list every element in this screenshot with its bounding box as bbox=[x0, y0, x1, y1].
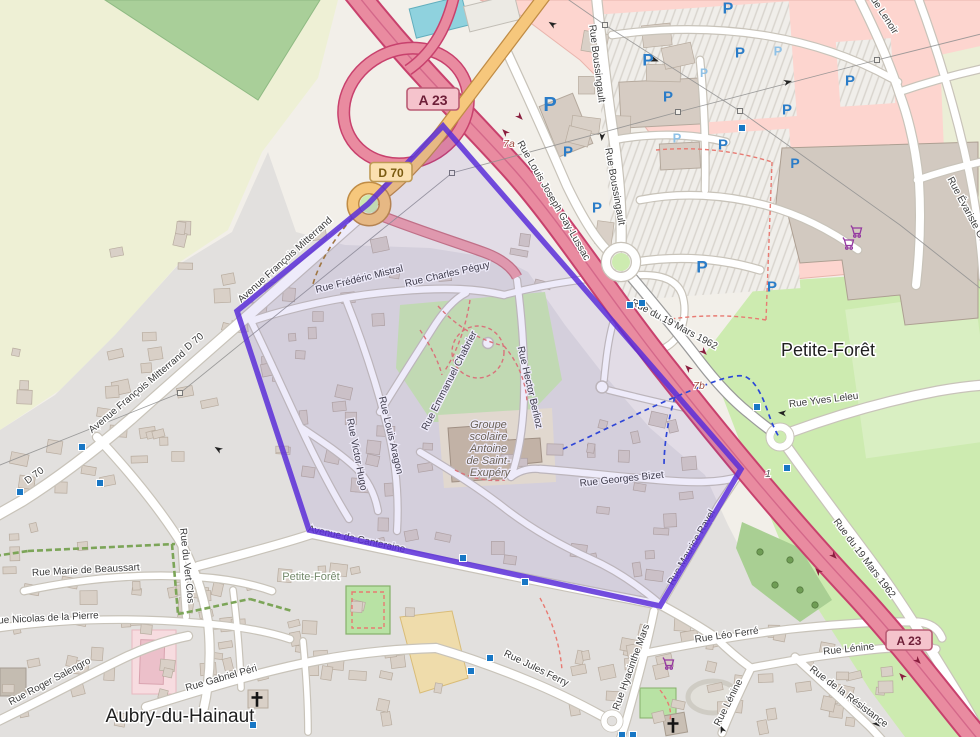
place-label-petite-foret: Petite-Forêt bbox=[781, 340, 875, 360]
power-pylon-icon bbox=[676, 110, 681, 115]
bus-stop-icon bbox=[754, 404, 761, 411]
parking-icon: P bbox=[782, 102, 792, 119]
power-pylon-icon bbox=[178, 391, 183, 396]
tree-icon bbox=[757, 549, 763, 555]
junction-ref-label: 1 bbox=[765, 468, 771, 480]
parking-icon: P bbox=[767, 279, 777, 296]
parking-icon: P bbox=[673, 131, 682, 146]
power-pylon-icon bbox=[603, 23, 608, 28]
bus-stop-icon bbox=[630, 732, 637, 737]
bus-stop-icon bbox=[468, 668, 475, 675]
bus-stop-icon bbox=[17, 489, 24, 496]
motorway-ref-badge: A 23 bbox=[407, 88, 459, 110]
parking-icon: P bbox=[696, 258, 707, 277]
junction-ref-label: 7a bbox=[503, 138, 515, 150]
bus-stop-icon bbox=[250, 722, 257, 729]
power-pylon-icon bbox=[738, 109, 743, 114]
bus-stop-icon bbox=[79, 444, 86, 451]
bus-stop-icon bbox=[639, 300, 646, 307]
parking-icon: P bbox=[642, 51, 653, 70]
tree-icon bbox=[787, 557, 793, 563]
svg-text:A 23: A 23 bbox=[418, 92, 447, 108]
bus-stop-icon bbox=[460, 555, 467, 562]
power-pylon-icon bbox=[875, 58, 880, 63]
bus-stop-icon bbox=[487, 655, 494, 662]
road-ref-badge: D 70 bbox=[370, 163, 412, 182]
suburb-label-petite-foret: Petite-Forêt bbox=[282, 571, 339, 583]
parking-icon: P bbox=[774, 44, 783, 59]
bus-stop-icon bbox=[619, 732, 626, 737]
place-label-aubry-du-hainaut: Aubry-du-Hainaut bbox=[106, 706, 256, 727]
parking-icon: P bbox=[700, 66, 708, 80]
bus-stop-icon bbox=[739, 125, 746, 132]
bus-stop-icon bbox=[522, 579, 529, 586]
parking-icon: P bbox=[718, 137, 728, 154]
bus-stop-icon bbox=[784, 465, 791, 472]
svg-text:D 70: D 70 bbox=[378, 166, 404, 180]
bus-stop-icon bbox=[97, 480, 104, 487]
parking-icon: P bbox=[790, 155, 799, 171]
parking-icon: P bbox=[723, 1, 734, 18]
parking-icon: P bbox=[735, 45, 745, 62]
map-viewport[interactable]: Rue BoussingaultRue BoussingaultRue Loui… bbox=[0, 0, 980, 737]
parking-icon: P bbox=[592, 200, 602, 217]
bus-stop-icon bbox=[627, 302, 634, 309]
map-canvas[interactable]: Rue BoussingaultRue BoussingaultRue Loui… bbox=[0, 0, 980, 737]
tree-icon bbox=[812, 602, 818, 608]
svg-text:A 23: A 23 bbox=[897, 634, 922, 648]
parking-icon: P bbox=[543, 94, 556, 116]
parking-icon: P bbox=[563, 144, 573, 161]
parking-icon: P bbox=[845, 73, 855, 90]
junction-ref-label: 7b bbox=[693, 380, 705, 392]
parking-icon: P bbox=[663, 89, 673, 106]
motorway-ref-badge: A 23 bbox=[886, 630, 932, 650]
tree-icon bbox=[797, 587, 803, 593]
tree-icon bbox=[772, 582, 778, 588]
